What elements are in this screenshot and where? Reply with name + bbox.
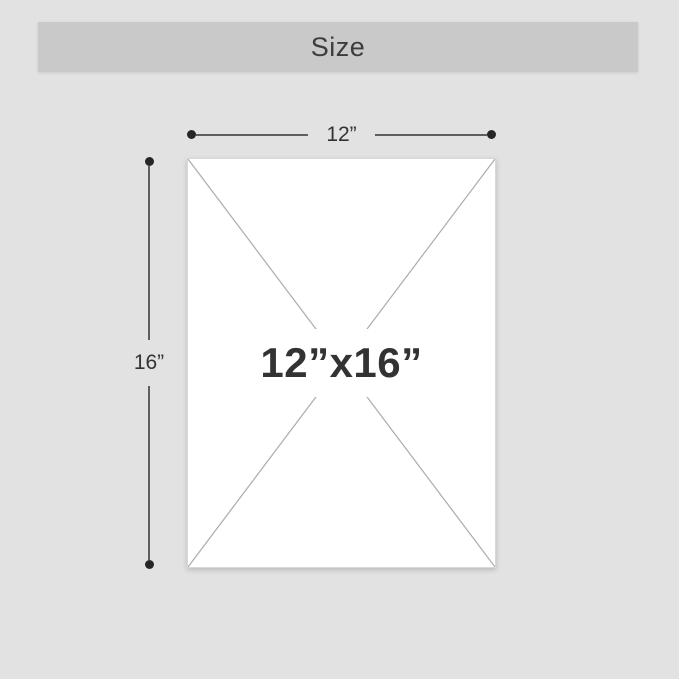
- size-title-bar: Size: [38, 22, 638, 72]
- dimension-line-segment: [196, 134, 308, 136]
- size-dimensions-label: 12”x16”: [246, 329, 436, 397]
- page-title: Size: [311, 32, 366, 63]
- dimension-endpoint-dot-right: [487, 130, 496, 139]
- dimension-line-segment: [148, 166, 150, 340]
- dimension-line-segment: [148, 386, 150, 560]
- dimension-endpoint-dot-top: [145, 157, 154, 166]
- width-dimension-label: 12”: [326, 123, 356, 147]
- dimension-line-segment: [375, 134, 487, 136]
- size-rectangle: 12”x16”: [187, 158, 496, 568]
- dimension-endpoint-dot-bottom: [145, 560, 154, 569]
- size-diagram-page: Size 12” 16” 12”x16”: [0, 0, 679, 679]
- height-dimension: 16”: [127, 157, 171, 569]
- dimension-endpoint-dot-left: [187, 130, 196, 139]
- width-dimension: 12”: [187, 122, 496, 147]
- height-dimension-label: 16”: [134, 351, 164, 375]
